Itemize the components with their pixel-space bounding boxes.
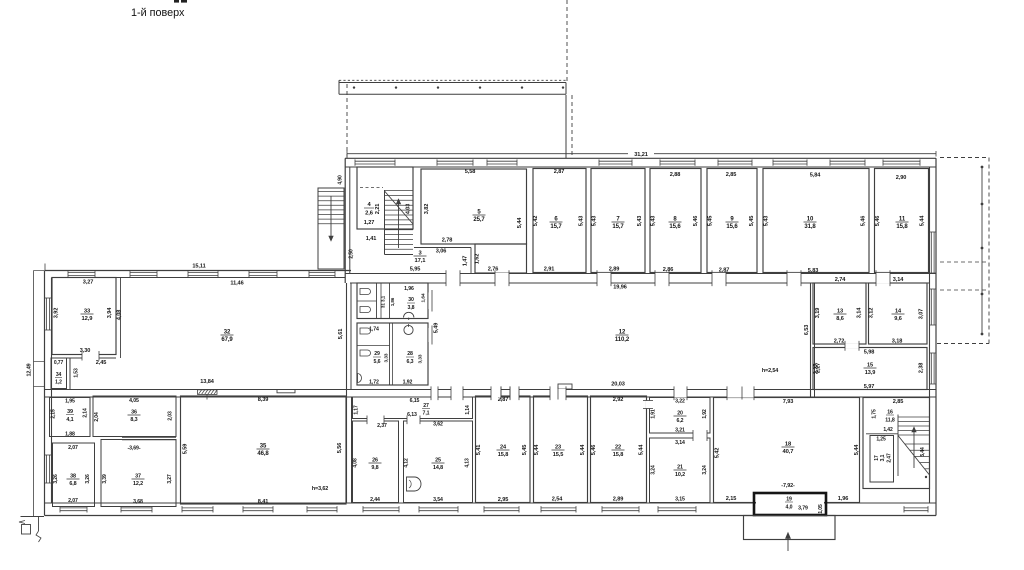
svg-text:3,19: 3,19 — [815, 308, 821, 319]
svg-text:28: 28 — [407, 351, 413, 357]
svg-text:5,97: 5,97 — [864, 384, 875, 390]
svg-text:2,78: 2,78 — [442, 238, 453, 244]
svg-text:3,14: 3,14 — [857, 307, 863, 318]
svg-text:3,94: 3,94 — [107, 307, 113, 318]
svg-text:1,91: 1,91 — [651, 409, 657, 419]
svg-text:4,90: 4,90 — [338, 175, 344, 185]
svg-text:-7,92-: -7,92- — [781, 483, 795, 489]
svg-text:15,6: 15,6 — [669, 224, 681, 230]
svg-text:5,46: 5,46 — [875, 216, 881, 227]
svg-text:15,8: 15,8 — [498, 452, 509, 458]
svg-text:3,8: 3,8 — [408, 305, 415, 311]
svg-text:2,14: 2,14 — [83, 408, 89, 418]
svg-text:67,9: 67,9 — [221, 337, 233, 343]
svg-text:3,21: 3,21 — [675, 428, 685, 434]
svg-text:3,24: 3,24 — [702, 465, 708, 475]
svg-text:1-й поверх: 1-й поверх — [131, 7, 185, 19]
svg-text:3,33: 3,33 — [384, 353, 390, 362]
svg-text:2,90: 2,90 — [896, 175, 907, 181]
svg-text:3,14: 3,14 — [893, 277, 904, 283]
svg-text:5,59: 5,59 — [183, 444, 189, 455]
svg-text:16: 16 — [887, 410, 893, 416]
svg-text:2,45: 2,45 — [96, 360, 107, 366]
svg-text:5,43: 5,43 — [592, 216, 598, 227]
svg-text:5,43: 5,43 — [764, 216, 770, 227]
svg-text:h=3,62: h=3,62 — [312, 486, 328, 492]
svg-text:5,46: 5,46 — [591, 445, 597, 456]
svg-text:4,13: 4,13 — [465, 458, 471, 468]
svg-text:29: 29 — [374, 351, 380, 357]
svg-text:8,3: 8,3 — [130, 417, 137, 423]
svg-text:1,62: 1,62 — [475, 254, 481, 265]
svg-text:2,95: 2,95 — [498, 497, 509, 503]
svg-text:2,03: 2,03 — [168, 411, 174, 421]
svg-text:5,43: 5,43 — [651, 216, 657, 227]
svg-text:6,3: 6,3 — [407, 359, 414, 365]
svg-text:3,79: 3,79 — [798, 506, 808, 512]
svg-text:13,9: 13,9 — [865, 370, 876, 376]
svg-text:5,44: 5,44 — [534, 444, 540, 455]
svg-text:5,56: 5,56 — [337, 443, 343, 454]
svg-text:15,6: 15,6 — [726, 224, 738, 230]
svg-text:2,87: 2,87 — [554, 169, 565, 175]
svg-text:5,95: 5,95 — [410, 267, 421, 273]
svg-text:110,2: 110,2 — [615, 337, 630, 343]
svg-text:3,33: 3,33 — [418, 354, 424, 363]
svg-text:1,42: 1,42 — [883, 427, 893, 433]
svg-text:1,53: 1,53 — [74, 368, 80, 378]
svg-text:1,95: 1,95 — [65, 399, 75, 405]
svg-text:1,92: 1,92 — [403, 380, 413, 386]
svg-text:2,27: 2,27 — [816, 363, 822, 374]
svg-text:3,62: 3,62 — [433, 422, 443, 428]
svg-text:5,41: 5,41 — [476, 445, 482, 456]
svg-text:4,08: 4,08 — [353, 458, 359, 468]
svg-text:31,21: 31,21 — [634, 152, 648, 158]
svg-text:5,98: 5,98 — [864, 350, 875, 356]
svg-text:5,49: 5,49 — [434, 323, 440, 334]
svg-text:5,83: 5,83 — [808, 268, 819, 274]
svg-text:2,15: 2,15 — [726, 496, 737, 502]
svg-text:2,21: 2,21 — [375, 204, 381, 215]
svg-text:1,2: 1,2 — [55, 380, 62, 386]
svg-text:3,30: 3,30 — [80, 348, 91, 354]
svg-text:5,44: 5,44 — [920, 447, 926, 457]
svg-text:1,88: 1,88 — [65, 432, 75, 438]
svg-text:5,43: 5,43 — [579, 216, 585, 227]
svg-text:2,47: 2,47 — [887, 453, 893, 463]
svg-text:1,47: 1,47 — [463, 256, 469, 267]
svg-text:3,27: 3,27 — [167, 474, 173, 484]
svg-text:34: 34 — [56, 372, 62, 378]
svg-text:2,92: 2,92 — [613, 397, 624, 403]
svg-text:8,39: 8,39 — [258, 397, 269, 403]
svg-text:3,92: 3,92 — [54, 308, 60, 319]
svg-text:2,87: 2,87 — [719, 268, 730, 274]
svg-text:17,1: 17,1 — [415, 258, 427, 264]
svg-text:4,12: 4,12 — [404, 458, 410, 468]
svg-text:27: 27 — [423, 403, 429, 409]
svg-text:1,72: 1,72 — [369, 380, 379, 386]
svg-text:3,26: 3,26 — [85, 474, 91, 484]
svg-text:1,64: 1,64 — [421, 293, 427, 302]
svg-text:2,74: 2,74 — [835, 277, 846, 283]
svg-text:19,96: 19,96 — [613, 285, 627, 291]
svg-text:1,27: 1,27 — [364, 220, 375, 226]
svg-text:31,8: 31,8 — [804, 224, 816, 230]
svg-text:12,49: 12,49 — [27, 363, 33, 376]
svg-text:7,1: 7,1 — [423, 411, 430, 417]
svg-text:11,8: 11,8 — [885, 418, 895, 424]
svg-text:15,11: 15,11 — [192, 264, 205, 270]
svg-text:14,8: 14,8 — [433, 465, 443, 471]
svg-text:5,44: 5,44 — [580, 444, 586, 455]
svg-text:5,44: 5,44 — [854, 444, 860, 455]
svg-text:1,41: 1,41 — [366, 236, 377, 242]
svg-text:3,24: 3,24 — [651, 465, 657, 475]
svg-text:2,89: 2,89 — [609, 267, 620, 273]
svg-text:1,14: 1,14 — [465, 405, 471, 415]
svg-text:2,85: 2,85 — [893, 399, 904, 405]
svg-text:30: 30 — [408, 297, 414, 303]
svg-text:2,04: 2,04 — [94, 412, 100, 422]
svg-text:2,38: 2,38 — [919, 363, 925, 374]
svg-text:15,7: 15,7 — [550, 224, 562, 230]
svg-text:h=2,54: h=2,54 — [762, 368, 778, 374]
svg-text:2,6: 2,6 — [365, 211, 374, 217]
svg-text:5,45: 5,45 — [708, 216, 714, 227]
svg-text:2,54: 2,54 — [552, 497, 563, 503]
svg-text:2,85: 2,85 — [726, 172, 737, 178]
svg-text:5,44: 5,44 — [920, 215, 926, 226]
svg-text:1,25: 1,25 — [876, 437, 886, 443]
svg-text:2,87: 2,87 — [498, 397, 509, 403]
svg-text:4,08: 4,08 — [117, 310, 123, 321]
svg-text:25,7: 25,7 — [473, 217, 485, 223]
svg-text:2,72: 2,72 — [834, 339, 845, 345]
svg-text:39: 39 — [67, 409, 73, 415]
svg-text:9,8: 9,8 — [371, 465, 378, 471]
svg-text:5,6: 5,6 — [374, 359, 381, 365]
svg-text:3,26: 3,26 — [53, 474, 59, 484]
svg-text:40,7: 40,7 — [783, 449, 794, 455]
svg-text:10,2: 10,2 — [675, 472, 685, 478]
svg-text:3,1: 3,1 — [880, 454, 886, 461]
svg-text:8,41: 8,41 — [258, 499, 269, 505]
svg-text:3,68: 3,68 — [133, 499, 143, 505]
svg-text:2,89: 2,89 — [613, 497, 624, 503]
svg-text:15,5: 15,5 — [553, 452, 564, 458]
svg-text:3,06: 3,06 — [436, 249, 447, 255]
svg-text:15,8: 15,8 — [896, 224, 908, 230]
svg-text:0,77: 0,77 — [54, 360, 64, 366]
svg-text:1,05: 1,05 — [818, 504, 824, 514]
svg-text:3,07: 3,07 — [919, 309, 925, 320]
svg-text:13,84: 13,84 — [200, 379, 214, 385]
svg-text:3,18: 3,18 — [892, 339, 903, 345]
svg-text:1,86: 1,86 — [390, 297, 395, 306]
svg-text:2,88: 2,88 — [670, 172, 681, 178]
svg-text:6,13: 6,13 — [407, 412, 417, 418]
svg-text:5,58: 5,58 — [465, 169, 476, 175]
svg-text:8,6: 8,6 — [836, 316, 843, 322]
svg-text:2,44: 2,44 — [370, 497, 380, 503]
svg-text:3,22: 3,22 — [675, 399, 685, 405]
svg-text:3,27: 3,27 — [83, 280, 94, 286]
svg-text:11,46: 11,46 — [230, 281, 243, 287]
svg-text:2,07: 2,07 — [68, 498, 78, 504]
svg-text:5,44: 5,44 — [517, 217, 523, 228]
svg-text:3,15: 3,15 — [675, 497, 685, 503]
svg-text:7,93: 7,93 — [783, 399, 794, 405]
svg-text:5,61: 5,61 — [338, 329, 344, 340]
svg-text:12,9: 12,9 — [82, 316, 94, 322]
svg-text:3,12: 3,12 — [869, 308, 875, 319]
svg-text:46,8: 46,8 — [257, 451, 269, 457]
svg-text:5,84: 5,84 — [810, 173, 821, 179]
svg-text:6,53: 6,53 — [804, 325, 810, 336]
svg-text:2,15: 2,15 — [51, 409, 57, 419]
svg-text:4,1: 4,1 — [66, 417, 73, 423]
svg-text:6,2: 6,2 — [677, 418, 684, 424]
svg-text:1,75: 1,75 — [872, 409, 878, 419]
svg-text:2,37: 2,37 — [377, 423, 387, 429]
svg-text:4,0: 4,0 — [786, 505, 793, 511]
svg-text:2,50: 2,50 — [349, 249, 355, 259]
svg-text:5,45: 5,45 — [749, 216, 755, 227]
svg-text:6,15: 6,15 — [410, 398, 420, 404]
svg-text:3,82: 3,82 — [424, 204, 430, 215]
svg-text:12,2: 12,2 — [133, 481, 143, 487]
svg-text:1,17: 1,17 — [354, 405, 360, 415]
svg-text:1,92: 1,92 — [702, 409, 708, 419]
svg-text:31 3,1: 31 3,1 — [381, 295, 386, 308]
svg-text:5,42: 5,42 — [715, 448, 721, 459]
svg-text:20,03: 20,03 — [611, 382, 625, 388]
svg-text:3,39: 3,39 — [102, 474, 108, 484]
svg-text:15,7: 15,7 — [612, 224, 624, 230]
svg-text:3,14: 3,14 — [675, 440, 685, 446]
svg-text:4,05: 4,05 — [129, 398, 139, 404]
svg-text:2,86: 2,86 — [663, 267, 674, 273]
svg-text:2,07: 2,07 — [68, 445, 78, 451]
svg-text:5,44: 5,44 — [639, 444, 645, 455]
svg-text:2,76: 2,76 — [488, 267, 499, 273]
svg-text:2,91: 2,91 — [544, 267, 555, 273]
svg-text:5,46: 5,46 — [693, 216, 699, 227]
svg-text:3,54: 3,54 — [433, 497, 443, 503]
svg-text:6,8: 6,8 — [69, 481, 76, 487]
svg-text:15,8: 15,8 — [613, 452, 624, 458]
svg-text:9,6: 9,6 — [894, 316, 901, 322]
svg-text:19: 19 — [786, 497, 792, 503]
svg-text:1,96: 1,96 — [404, 286, 414, 292]
svg-text:5,45: 5,45 — [522, 445, 528, 456]
svg-text:1,96: 1,96 — [838, 496, 849, 502]
svg-text:-3,69-: -3,69- — [128, 446, 141, 452]
svg-text:5,42: 5,42 — [533, 216, 539, 227]
svg-text:5,46: 5,46 — [861, 216, 867, 227]
svg-text:5,43: 5,43 — [637, 216, 643, 227]
